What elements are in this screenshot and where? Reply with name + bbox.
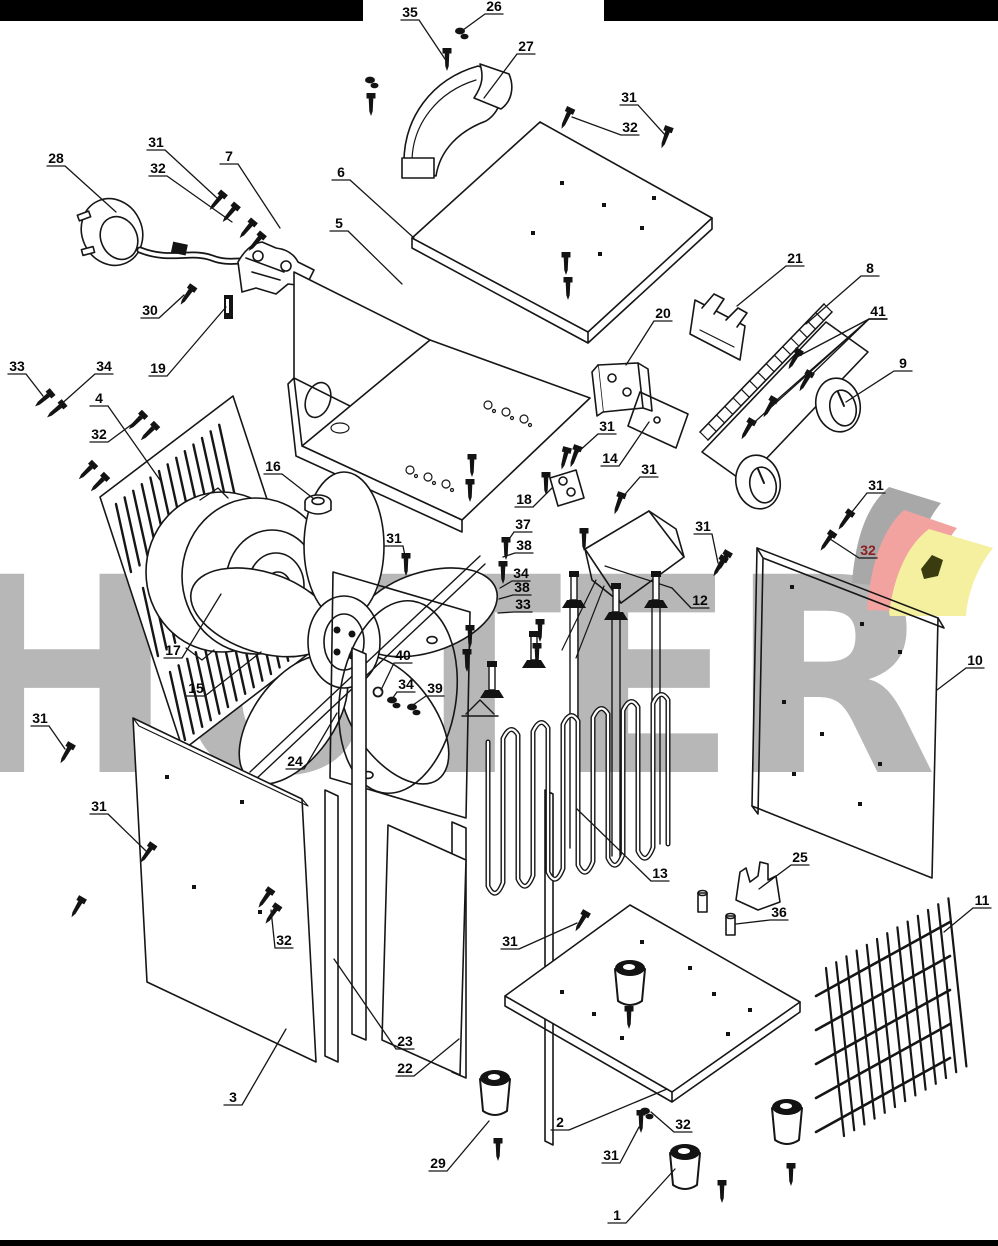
callout-part-31: 31 [848, 477, 885, 517]
part-number-label: 25 [792, 849, 808, 865]
bottom-black-bar [0, 1240, 998, 1246]
callout-part-2: 2 [551, 1089, 667, 1130]
exploded-parts-diagram: HÜTER [0, 0, 998, 1246]
part-number-label: 15 [188, 680, 204, 696]
bolt-icon [572, 909, 591, 933]
part-number-label: 18 [516, 491, 532, 507]
part-number-label: 38 [514, 579, 530, 595]
callout-part-31: 31 [501, 923, 577, 949]
spacer-part-36 [698, 891, 735, 936]
back-panel-part-10 [752, 548, 944, 878]
part-number-label: 41 [870, 303, 886, 319]
callout-part-11: 11 [944, 892, 991, 932]
part-number-label: 2 [556, 1114, 564, 1130]
part-number-label: 13 [652, 865, 668, 881]
handle-part-27 [402, 64, 512, 178]
callout-part-29: 29 [429, 1121, 489, 1171]
part-number-label: 27 [518, 38, 534, 54]
part-number-label: 31 [386, 530, 402, 546]
part-number-label: 32 [276, 932, 292, 948]
callout-part-16: 16 [264, 458, 314, 499]
callout-part-5: 5 [330, 215, 402, 284]
bolt-icon [710, 554, 729, 578]
bolt-icon [738, 417, 757, 441]
part-number-label: 4 [95, 390, 103, 406]
part-number-label: 6 [337, 164, 345, 180]
bolt-icon [557, 446, 572, 471]
bolt-icon [367, 93, 376, 116]
part-number-label: 12 [692, 592, 708, 608]
callout-part-10: 10 [937, 652, 984, 690]
part-number-label: 31 [868, 477, 884, 493]
callout-part-32: 32 [572, 117, 639, 135]
part-number-label: 16 [265, 458, 281, 474]
callout-part-28: 28 [47, 150, 116, 212]
bolt-icon [236, 217, 258, 240]
part-number-label: 10 [967, 652, 983, 668]
part-number-label: 36 [771, 904, 787, 920]
callout-part-33: 33 [8, 358, 43, 396]
bolt-icon [402, 553, 411, 576]
part-number-label: 31 [32, 710, 48, 726]
bolt-icon [443, 48, 452, 71]
part-number-label: 7 [225, 148, 233, 164]
bracket-part-25 [736, 862, 780, 910]
callout-part-33: 33 [498, 596, 532, 613]
part-number-label: 31 [148, 134, 164, 150]
switch-part-20 [592, 363, 652, 416]
top-right-black-bar [604, 0, 998, 21]
callout-part-32: 32 [830, 539, 877, 558]
part-number-label: 32 [150, 160, 166, 176]
bolt-icon [787, 1163, 796, 1186]
callout-part-21: 21 [737, 250, 804, 306]
part-number-label: 29 [430, 1155, 446, 1171]
callout-part-32: 32 [651, 1112, 692, 1132]
part-number-label: 32 [622, 119, 638, 135]
part-number-label: 28 [48, 150, 64, 166]
diagram-canvas: 3526273132283132765301933344322184192031… [0, 0, 998, 1246]
part-number-label: 26 [486, 0, 502, 14]
shaft-cap-part-16 [305, 495, 331, 514]
part-number-label: 5 [335, 215, 343, 231]
part-number-label: 31 [502, 933, 518, 949]
callout-part-31: 31 [694, 518, 718, 563]
part-number-label: 20 [655, 305, 671, 321]
callout-part-1: 1 [608, 1169, 675, 1223]
callout-part-32: 32 [90, 422, 135, 442]
callout-part-30: 30 [141, 295, 184, 318]
part-number-label: 21 [787, 250, 803, 266]
part-number-label: 32 [860, 542, 876, 558]
callout-part-20: 20 [626, 305, 672, 365]
bolt-icon [206, 189, 228, 212]
part-number-label: 23 [397, 1033, 413, 1049]
bolt-icon [138, 421, 161, 444]
part-number-label: 33 [9, 358, 25, 374]
bolt-icon [557, 106, 575, 131]
callout-part-8: 8 [806, 260, 879, 324]
part-number-label: 17 [165, 642, 181, 658]
bolt-icon [76, 460, 99, 483]
bolt-icon [177, 283, 198, 307]
part-number-label: 14 [602, 450, 618, 466]
grille-part-11 [816, 898, 966, 1136]
part-number-label: 33 [515, 596, 531, 612]
callout-part-26: 26 [463, 0, 503, 30]
callout-part-32: 32 [149, 160, 232, 222]
part-number-label: 35 [402, 4, 418, 20]
part-number-label: 31 [641, 461, 657, 477]
bolt-icon [68, 895, 87, 919]
callout-part-31: 31 [577, 418, 616, 453]
callout-part-31: 31 [602, 1127, 639, 1163]
part-number-label: 19 [150, 360, 166, 376]
callout-part-35: 35 [401, 4, 447, 62]
part-number-label: 3 [229, 1089, 237, 1105]
part-number-label: 22 [397, 1060, 413, 1076]
part-number-label: 24 [287, 753, 303, 769]
part-number-label: 31 [599, 418, 615, 434]
heating-element-part-13 [462, 571, 668, 893]
bolt-icon [760, 395, 779, 419]
bolt-icon [463, 649, 472, 672]
part-number-label: 31 [91, 798, 107, 814]
part-number-label: 34 [398, 676, 414, 692]
power-plug-part-28 [70, 189, 254, 276]
top-left-black-bar [0, 0, 363, 21]
part-number-label: 37 [515, 516, 531, 532]
callout-part-31: 31 [31, 710, 65, 749]
part-number-label: 32 [91, 426, 107, 442]
bracket-part-21 [690, 294, 747, 360]
part-number-label: 9 [899, 355, 907, 371]
callout-part-31: 31 [620, 461, 658, 500]
part-number-label: 38 [516, 537, 532, 553]
part-number-label: 34 [96, 358, 112, 374]
part-number-label: 40 [395, 647, 411, 663]
part-number-label: 1 [613, 1207, 621, 1223]
bolt-icon [718, 1180, 727, 1203]
part-number-label: 31 [603, 1147, 619, 1163]
part-number-label: 39 [427, 680, 443, 696]
part-number-label: 30 [142, 302, 158, 318]
bolt-icon [499, 561, 508, 584]
callout-part-12: 12 [672, 588, 709, 608]
bolt-icon [126, 410, 149, 433]
part-number-label: 11 [975, 892, 990, 908]
part-number-label: 8 [866, 260, 874, 276]
callout-part-34: 34 [58, 358, 113, 407]
bolt-icon [494, 1138, 503, 1161]
part-number-label: 32 [675, 1116, 691, 1132]
bolt-icon [32, 388, 55, 410]
callout-part-9: 9 [846, 355, 912, 402]
part-number-label: 31 [621, 89, 637, 105]
terminal-block-part-18 [550, 470, 584, 506]
bolt-icon [57, 741, 76, 765]
part-number-label: 31 [695, 518, 711, 534]
